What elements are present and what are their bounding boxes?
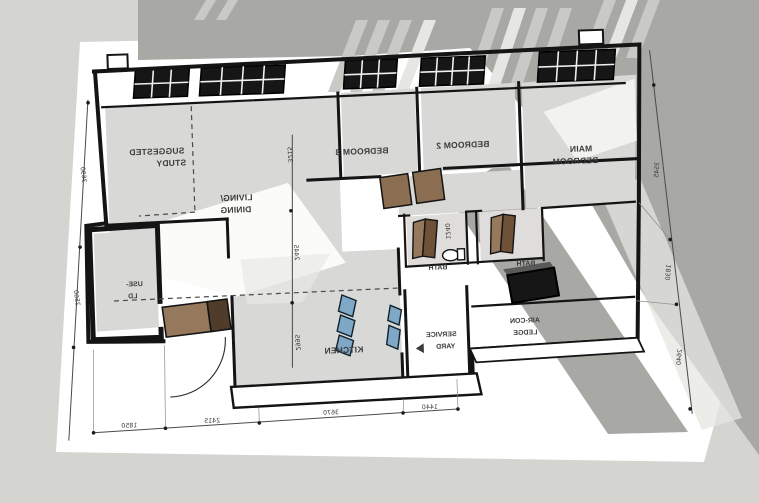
window-icon xyxy=(133,68,189,98)
bedroom2-floor xyxy=(421,83,518,172)
bedroom3-door-icon xyxy=(380,174,412,209)
bedroom3-floor xyxy=(341,88,418,177)
household-shelter-label: LD xyxy=(128,293,138,300)
floorplan-screenshot: SUGGESTED STUDY LIVING/ DINING BEDROOM 3… xyxy=(0,0,759,503)
dim-right-1: 3545 xyxy=(653,162,661,178)
study-label: SUGGESTED xyxy=(129,145,184,157)
service-yard-label: YARD xyxy=(436,343,455,351)
living-dining-label: DINING xyxy=(220,204,251,215)
household-shelter-label: USE- xyxy=(125,281,143,289)
bath2-label: BATH xyxy=(516,260,535,268)
dim-right-2: 1830 xyxy=(665,264,673,280)
service-yard-label: SERVICE xyxy=(426,331,457,339)
window-icon xyxy=(343,59,397,89)
dim-bath: 1240 xyxy=(443,223,451,239)
dim-bottom-1: 1850 xyxy=(121,422,137,430)
parapet-bump xyxy=(107,54,127,69)
dim-bottom-3: 3670 xyxy=(323,409,339,417)
main-bedroom-label: MAIN xyxy=(570,143,593,154)
shelter-floor xyxy=(94,229,159,331)
kitchen-label: KITCHEN xyxy=(324,344,364,355)
aircon-ledge-label: AIR-CON xyxy=(510,317,540,325)
bedroom3-label: BEDROOM 3 xyxy=(335,145,389,157)
window-icon xyxy=(537,49,615,82)
window-icon xyxy=(419,56,485,86)
dim-bottom-2: 2415 xyxy=(204,417,220,425)
dim-right-3: 2640 xyxy=(676,349,684,365)
aircon-ledge-label: LEDGE xyxy=(513,329,538,337)
entrance-door-leaf-icon xyxy=(207,299,231,332)
main-bedroom-label: BEDROOM xyxy=(552,155,598,167)
bedroom2-door-icon xyxy=(413,168,445,203)
dim-bottom-4: 1440 xyxy=(422,404,438,412)
bedroom2-label: BEDROOM 2 xyxy=(436,139,490,151)
entrance-door-icon xyxy=(162,302,211,338)
dim-interior-1: 3215 xyxy=(285,146,293,162)
dim-interior-2: 2445 xyxy=(292,244,300,260)
window-icon xyxy=(199,65,285,96)
floorplan-drawing: SUGGESTED STUDY LIVING/ DINING BEDROOM 3… xyxy=(0,0,759,503)
toilet-icon xyxy=(442,249,464,261)
bath1-label: BATH xyxy=(428,264,447,272)
study-label: STUDY xyxy=(156,157,186,168)
dim-interior-3: 2995 xyxy=(293,334,301,350)
living-dining-label: LIVING/ xyxy=(220,192,253,203)
parapet-bump xyxy=(579,30,603,45)
